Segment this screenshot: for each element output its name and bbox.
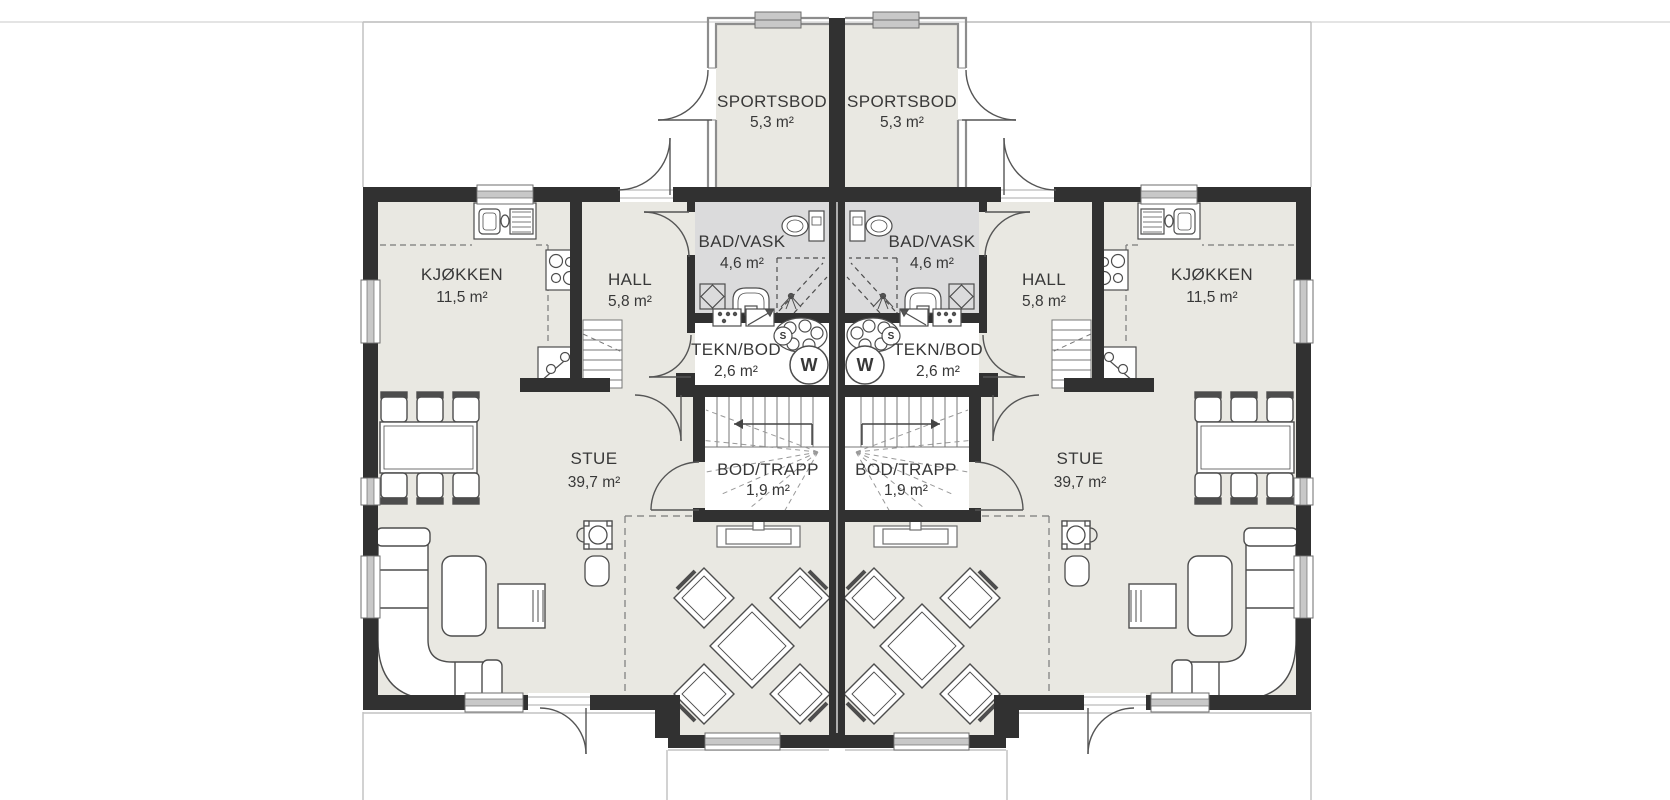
washing-machine-mark-right: W — [857, 355, 874, 375]
room-area-kjokken-left: 11,5 m² — [436, 289, 487, 306]
water-heater-mark-right: S — [888, 331, 895, 342]
room-area-bodtrapp-left: 1,9 m² — [746, 482, 790, 499]
room-area-badvask-right: 4,6 m² — [910, 255, 954, 272]
room-label-bodtrapp-right: BOD/TRAPP — [855, 460, 957, 479]
room-area-sportsbod-left: 5,3 m² — [750, 114, 794, 131]
room-area-stue-left: 39,7 m² — [568, 474, 621, 491]
floorplan-drawing: SPORTSBOD 5,3 m² SPORTSBOD 5,3 m² BAD/VA… — [0, 0, 1670, 800]
room-area-badvask-left: 4,6 m² — [720, 255, 764, 272]
room-area-hall-right: 5,8 m² — [1022, 293, 1066, 310]
water-heater-mark-left: S — [780, 331, 787, 342]
room-label-kjokken-left: KJØKKEN — [421, 265, 503, 284]
room-area-teknbod-right: 2,6 m² — [916, 363, 960, 380]
room-label-badvask-right: BAD/VASK — [889, 232, 976, 251]
floorplan-page: SPORTSBOD 5,3 m² SPORTSBOD 5,3 m² BAD/VA… — [0, 0, 1670, 800]
washing-machine-mark-left: W — [801, 355, 818, 375]
room-area-stue-right: 39,7 m² — [1054, 474, 1107, 491]
room-label-stue-right: STUE — [1057, 449, 1104, 468]
room-area-teknbod-left: 2,6 m² — [714, 363, 758, 380]
room-area-kjokken-right: 11,5 m² — [1186, 289, 1237, 306]
room-label-hall-right: HALL — [1022, 270, 1066, 289]
room-label-teknbod-right: TEKN/BOD — [893, 340, 983, 359]
room-area-hall-left: 5,8 m² — [608, 293, 652, 310]
room-label-kjokken-right: KJØKKEN — [1171, 265, 1253, 284]
room-area-bodtrapp-right: 1,9 m² — [884, 482, 928, 499]
room-area-sportsbod-right: 5,3 m² — [880, 114, 924, 131]
room-label-badvask-left: BAD/VASK — [699, 232, 786, 251]
room-label-hall-left: HALL — [608, 270, 652, 289]
room-label-bodtrapp-left: BOD/TRAPP — [717, 460, 819, 479]
room-label-teknbod-left: TEKN/BOD — [691, 340, 781, 359]
room-label-sportsbod-left: SPORTSBOD — [717, 92, 827, 111]
room-label-sportsbod-right: SPORTSBOD — [847, 92, 957, 111]
room-label-stue-left: STUE — [571, 449, 618, 468]
